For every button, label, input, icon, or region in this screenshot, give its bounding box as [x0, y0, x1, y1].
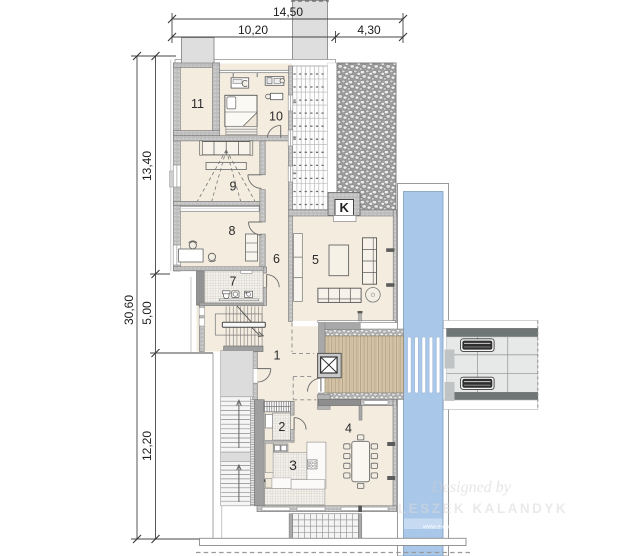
svg-text:13,40: 13,40: [140, 151, 154, 181]
svg-text:4,30: 4,30: [357, 23, 381, 37]
svg-text:2: 2: [278, 420, 285, 434]
svg-text:6: 6: [273, 252, 280, 266]
svg-text:10,20: 10,20: [238, 23, 268, 37]
svg-text:www.e-domy.pl: www.e-domy.pl: [422, 525, 463, 531]
svg-text:Designed by: Designed by: [430, 479, 511, 496]
svg-text:1: 1: [274, 349, 281, 363]
svg-text:10: 10: [269, 110, 283, 124]
svg-text:5: 5: [312, 253, 319, 267]
svg-text:30,60: 30,60: [122, 295, 136, 325]
svg-text:14,50: 14,50: [273, 5, 303, 19]
svg-text:5,00: 5,00: [140, 301, 154, 325]
svg-text:LESZEK KALANDYK: LESZEK KALANDYK: [398, 501, 568, 516]
svg-text:K: K: [340, 200, 350, 215]
svg-text:9: 9: [230, 180, 237, 194]
svg-text:4: 4: [345, 422, 352, 436]
svg-text:8: 8: [229, 224, 236, 238]
svg-text:7: 7: [230, 274, 237, 288]
svg-text:11: 11: [191, 97, 204, 111]
svg-text:12,20: 12,20: [140, 431, 154, 461]
svg-text:3: 3: [289, 457, 297, 473]
